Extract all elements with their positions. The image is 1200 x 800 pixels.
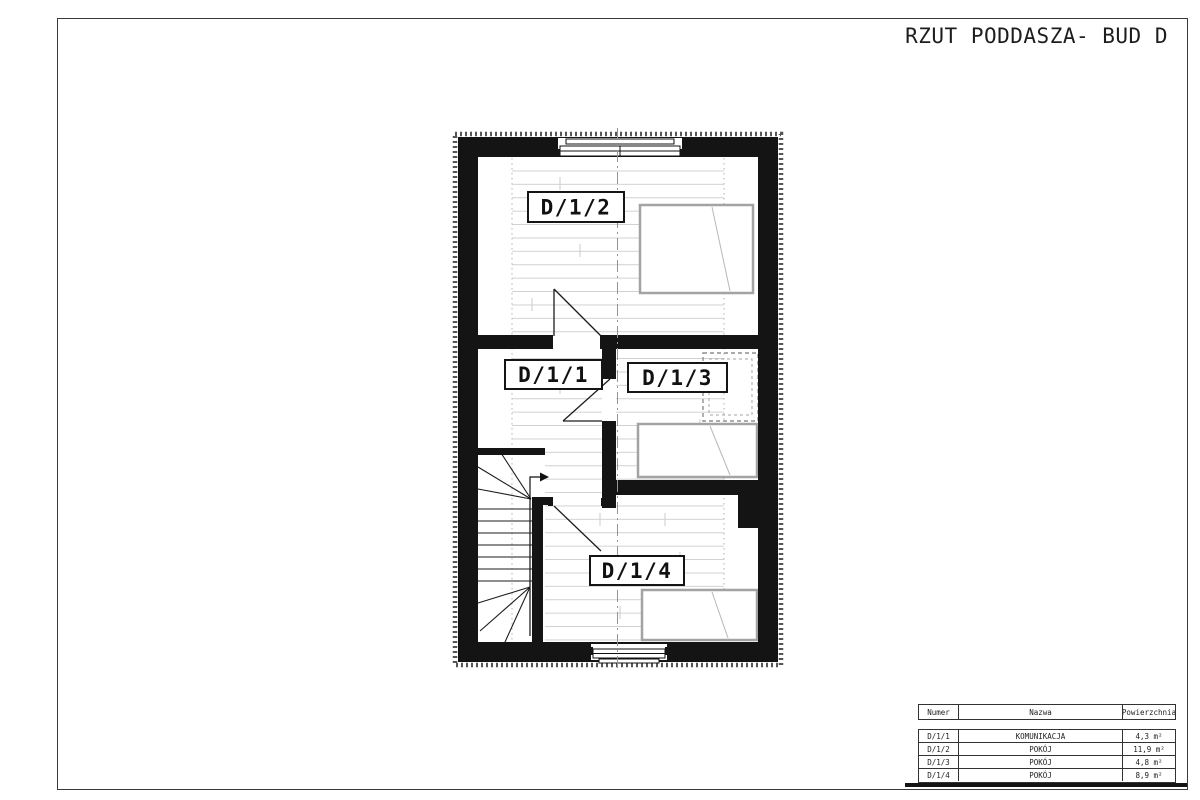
table-row: D/1/3 POKÓJ 4,8 m² xyxy=(919,755,1175,768)
room-name: POKÓJ xyxy=(959,756,1123,768)
room-number: D/1/3 xyxy=(919,756,959,768)
room-area: 8,9 m² xyxy=(1123,769,1175,781)
drawing-title: RZUT PODDASZA- BUD D xyxy=(905,24,1168,48)
room-area: 4,8 m² xyxy=(1123,756,1175,768)
titleblock-divider xyxy=(905,783,1187,787)
room-area: 11,9 m² xyxy=(1123,743,1175,755)
room-number: D/1/4 xyxy=(919,769,959,781)
bed-room-d14 xyxy=(642,590,757,640)
legend-header-row: Numer Nazwa Powierzchnia xyxy=(918,704,1176,720)
room-label-d12: D/1/2 xyxy=(528,192,624,222)
svg-text:D/1/1: D/1/1 xyxy=(518,363,589,387)
svg-text:D/1/4: D/1/4 xyxy=(602,559,673,583)
room-name: POKÓJ xyxy=(959,769,1123,781)
room-number: D/1/2 xyxy=(919,743,959,755)
chimney-block xyxy=(738,495,758,528)
room-label-d11: D/1/1 xyxy=(505,360,602,389)
room-name: POKÓJ xyxy=(959,743,1123,755)
legend-header-powierzchnia: Powierzchnia xyxy=(1123,705,1175,719)
room-number: D/1/1 xyxy=(919,730,959,742)
legend-body: D/1/1 KOMUNIKACJA 4,3 m² D/1/2 POKÓJ 11,… xyxy=(918,729,1176,783)
room-area: 4,3 m² xyxy=(1123,730,1175,742)
drawing-sheet: { "page": { "title": "RZUT PODDASZA- BUD… xyxy=(0,0,1200,800)
room-label-d14: D/1/4 xyxy=(590,556,684,585)
svg-text:D/1/2: D/1/2 xyxy=(541,196,612,220)
floor-plan: D/1/2 D/1/1 D/1/3 D/1/4 xyxy=(430,115,810,685)
legend-header-numer: Numer xyxy=(919,705,959,719)
svg-text:D/1/3: D/1/3 xyxy=(642,366,713,390)
table-row: D/1/1 KOMUNIKACJA 4,3 m² xyxy=(919,730,1175,742)
room-name: KOMUNIKACJA xyxy=(959,730,1123,742)
bed-room-d13 xyxy=(638,424,757,477)
bed-room-d12 xyxy=(640,205,753,293)
window-top xyxy=(556,138,684,157)
legend-header-nazwa: Nazwa xyxy=(959,705,1123,719)
room-label-d13: D/1/3 xyxy=(628,363,727,392)
window-bottom xyxy=(589,644,669,663)
table-row: D/1/2 POKÓJ 11,9 m² xyxy=(919,742,1175,755)
table-row: D/1/4 POKÓJ 8,9 m² xyxy=(919,768,1175,781)
